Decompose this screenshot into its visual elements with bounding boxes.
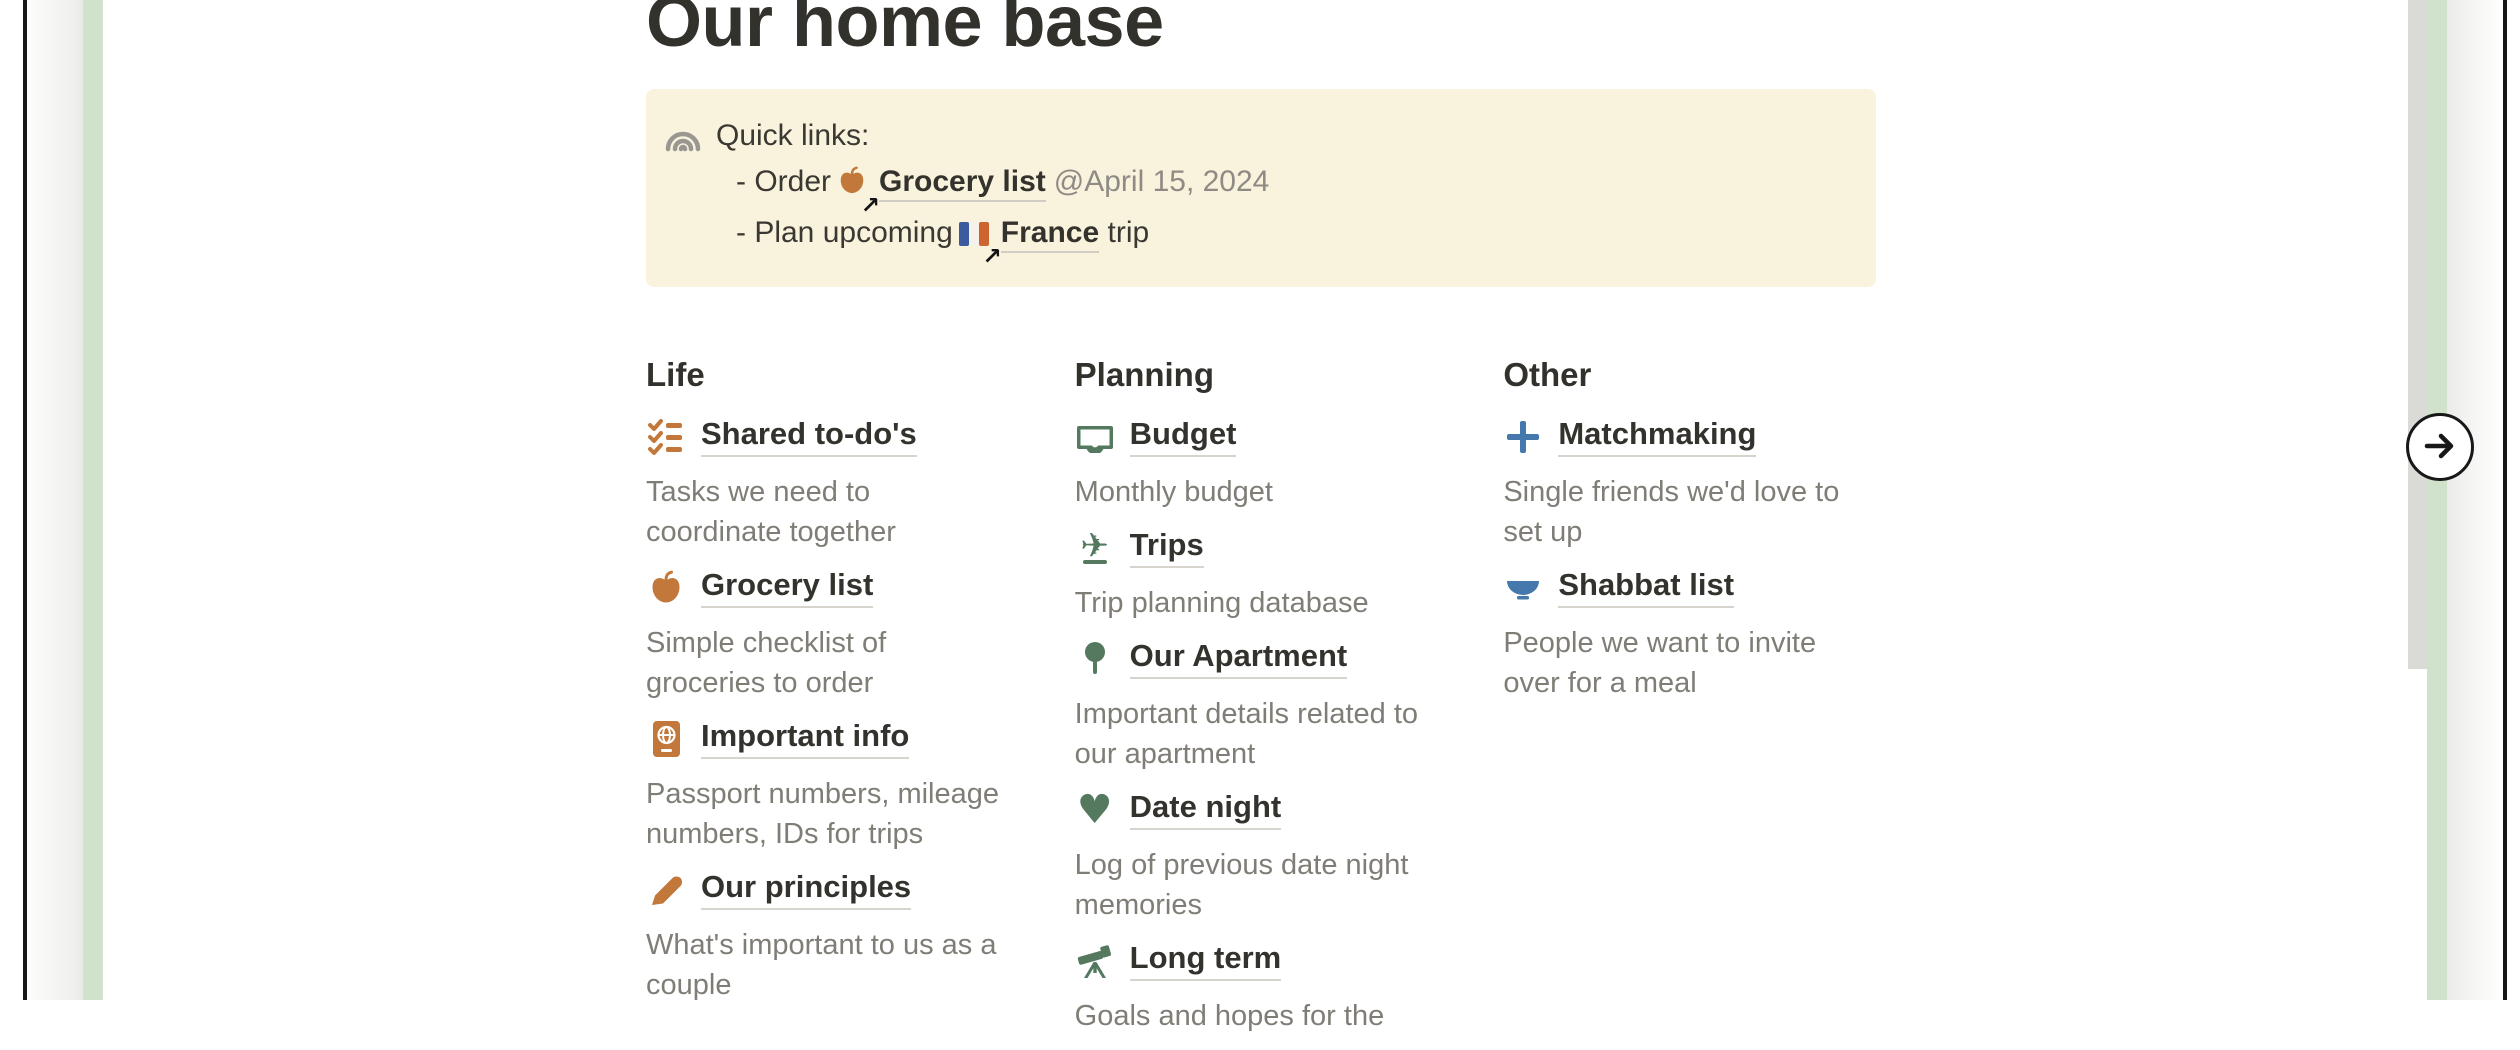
date-mention[interactable]: @April 15, 2024 <box>1054 165 1270 198</box>
grocery-list-quick-link[interactable]: Grocery list <box>879 165 1046 202</box>
page-link-shared-todos[interactable]: Shared to-do's <box>646 415 1019 459</box>
page-link-our-principles[interactable]: Our principles <box>646 868 1019 912</box>
page-link-trips[interactable]: ✈ Trips <box>1075 526 1448 570</box>
telescope-icon <box>1075 941 1115 981</box>
plus-icon <box>1503 417 1543 457</box>
page-link-description: Tasks we need to coordinate together <box>646 472 1019 552</box>
page-link-description: Log of previous date night memories <box>1075 845 1448 925</box>
page-link-description: Simple checklist of groceries to order <box>646 623 1019 703</box>
page-link-our-apartment[interactable]: Our Apartment <box>1075 637 1448 681</box>
page-link-description: Trip planning database <box>1075 583 1448 623</box>
column-heading: Life <box>646 355 1019 395</box>
france-flag-icon: ↗ <box>959 215 989 261</box>
page-link-long-term[interactable]: Long term <box>1075 939 1448 983</box>
passport-icon <box>646 719 686 759</box>
heart-icon: ♥ <box>1075 790 1115 830</box>
bowl-icon <box>1503 568 1543 608</box>
next-card-edge <box>2447 0 2503 1000</box>
columns-section: Life <box>646 355 1876 1050</box>
page-link-grocery-list[interactable]: Grocery list <box>646 566 1019 610</box>
page-link-shabbat-list[interactable]: Shabbat list <box>1503 566 1876 610</box>
carousel-frame-right-border <box>2503 0 2507 1000</box>
column-heading: Other <box>1503 355 1876 395</box>
pin-icon <box>1075 639 1115 679</box>
notion-page: Our home base Quick links: - Order↗Groce… <box>103 0 2427 1000</box>
column-planning: Planning Budget Monthly budget <box>1075 355 1448 1050</box>
column-other: Other Matchmaking Single friends we'd lo… <box>1503 355 1876 1050</box>
quick-links-callout: Quick links: - Order↗Grocery list@April … <box>646 89 1876 287</box>
apple-icon: ↗ <box>837 164 867 210</box>
page-link-description: People we want to invite over for a meal <box>1503 623 1876 703</box>
apple-icon <box>646 568 686 608</box>
money-icon <box>1075 417 1115 457</box>
page-link-date-night[interactable]: ♥ Date night <box>1075 788 1448 832</box>
arrow-right-icon <box>2423 432 2457 463</box>
quick-link-line: - Plan upcoming↗France trip <box>716 210 1269 261</box>
checklist-icon <box>646 417 686 457</box>
previous-card-edge <box>27 0 83 1000</box>
template-card-green-border-left <box>83 0 103 1000</box>
page-link-description: Important details related to our apartme… <box>1075 694 1448 774</box>
carousel-next-button[interactable] <box>2406 413 2474 481</box>
page-right-shadow <box>2408 0 2427 669</box>
page-link-budget[interactable]: Budget <box>1075 415 1448 459</box>
column-heading: Planning <box>1075 355 1448 395</box>
rainbow-icon <box>662 120 704 159</box>
page-title: Our home base <box>646 0 1876 60</box>
page-link-description: Goals and hopes for the <box>1075 996 1448 1036</box>
airplane-icon: ✈ <box>1075 528 1115 568</box>
template-card-green-border-right <box>2427 0 2447 1000</box>
pencil-icon <box>646 870 686 910</box>
external-link-arrow-icon: ↗ <box>861 195 880 218</box>
quick-link-line: - Order↗Grocery list@April 15, 2024 <box>716 159 1269 210</box>
page-link-important-info[interactable]: Important info <box>646 717 1019 761</box>
callout-title: Quick links: <box>716 113 1269 159</box>
page-link-description: What's important to us as a couple <box>646 925 1019 1005</box>
page-link-description: Single friends we'd love to set up <box>1503 472 1876 552</box>
column-life: Life <box>646 355 1019 1050</box>
page-link-matchmaking[interactable]: Matchmaking <box>1503 415 1876 459</box>
page-link-description: Monthly budget <box>1075 472 1448 512</box>
page-link-description: Passport numbers, mileage numbers, IDs f… <box>646 774 1019 854</box>
external-link-arrow-icon: ↗ <box>983 246 1002 269</box>
france-trip-quick-link[interactable]: France <box>1001 216 1099 253</box>
carousel-frame-left-border <box>23 0 27 1000</box>
